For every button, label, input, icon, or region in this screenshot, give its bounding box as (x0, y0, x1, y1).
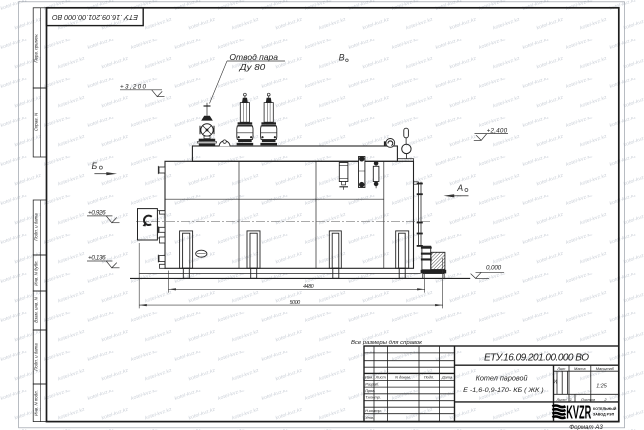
svg-text:И: И (553, 379, 557, 385)
svg-text:Котел паровой: Котел паровой (476, 375, 528, 383)
svg-text:Все размеры для справок: Все размеры для справок (351, 340, 422, 346)
svg-text:Масштаб: Масштаб (596, 366, 615, 371)
svg-text:0,000: 0,000 (486, 264, 502, 271)
svg-text:Б: Б (92, 161, 98, 171)
svg-text:ЕТУ.16.09.201.00.000 ВО: ЕТУ.16.09.201.00.000 ВО (484, 353, 589, 364)
svg-text:+0,136: +0,136 (88, 255, 106, 262)
svg-text:5000: 5000 (290, 300, 301, 306)
svg-text:Взам. инв. N: Взам. инв. N (33, 296, 38, 322)
svg-text:Е -1,6-0,9-170- КБ ( ЖК ): Е -1,6-0,9-170- КБ ( ЖК ) (463, 387, 544, 394)
svg-text:Лит: Лит (556, 366, 566, 371)
svg-text:А: А (456, 183, 463, 193)
svg-text:Перв. примен.: Перв. примен. (33, 33, 38, 62)
svg-text:Т.контр.: Т.контр. (365, 395, 381, 400)
svg-text:Утв.: Утв. (365, 415, 374, 420)
svg-text:Справ. N: Справ. N (33, 112, 38, 131)
svg-text:Инв. N дубл.: Инв. N дубл. (33, 260, 38, 285)
svg-text:Подп.: Подп. (424, 375, 434, 380)
svg-text:Отвод пара: Отвод пара (229, 52, 278, 62)
svg-text:+0,926: +0,926 (88, 210, 106, 217)
svg-text:KVZR: KVZR (566, 401, 591, 422)
svg-text:Масса: Масса (574, 366, 586, 371)
svg-text:+2,400: +2,400 (487, 127, 508, 134)
svg-text:Изм.: Изм. (365, 375, 373, 380)
svg-text:ЗАВОД РЭП: ЗАВОД РЭП (593, 412, 615, 416)
svg-text:N докум.: N докум. (395, 375, 411, 380)
svg-text:Ду 80: Ду 80 (238, 62, 265, 72)
svg-text:Подп. и дата: Подп. и дата (33, 343, 38, 371)
svg-text:Подп. и дата: Подп. и дата (33, 213, 38, 241)
svg-text:Дата: Дата (441, 375, 453, 380)
svg-text:Лист: Лист (375, 375, 387, 380)
svg-text:4480: 4480 (303, 284, 314, 290)
svg-text:Формат А3: Формат А3 (569, 424, 603, 430)
svg-text:Разраб.: Разраб. (365, 381, 379, 386)
svg-text:Инв. N подл.: Инв. N подл. (33, 390, 38, 416)
svg-text:В: В (339, 53, 345, 63)
svg-text:1:25: 1:25 (596, 384, 607, 390)
svg-text:КОТЕЛЬНЫЙ: КОТЕЛЬНЫЙ (593, 407, 617, 411)
svg-text:Пров.: Пров. (365, 388, 375, 393)
svg-text:ЕТУ .16.09.201.00.000 ВО: ЕТУ .16.09.201.00.000 ВО (52, 13, 138, 22)
svg-text:Н.контр.: Н.контр. (365, 408, 381, 413)
